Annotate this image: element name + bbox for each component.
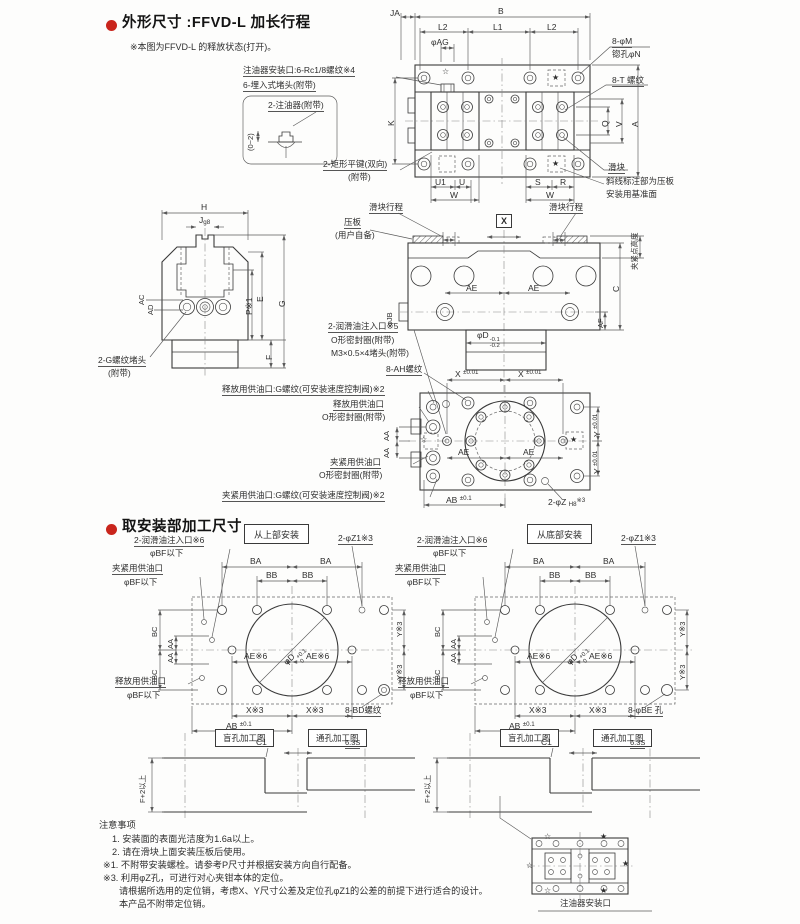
dim-value: X: [518, 369, 524, 379]
dim-aa2: AA: [383, 448, 392, 458]
note-item: 2. 请在滑块上面安装压板后使用。: [112, 847, 251, 858]
dim-l1: L1: [493, 23, 502, 33]
drawing-front-view: [146, 210, 286, 376]
section1-title: 外形尺寸 :FFVD-L 加长行程: [122, 15, 311, 32]
label-clamp-point-height: 夹紧点高度: [631, 233, 640, 271]
dim-w-right: W: [546, 191, 554, 201]
callout-bf-max: φBF以下: [124, 578, 157, 588]
callout-flat-key-attached: (附带): [348, 173, 371, 183]
callout-clamp-port: 夹紧用供油口: [395, 564, 446, 575]
dim-ae-right: AE: [528, 284, 539, 294]
callout-8-phi-be-holes: 8-φBE 孔: [628, 706, 663, 717]
notes-title: 注意事项: [99, 820, 136, 831]
dim-u: U: [459, 178, 465, 188]
callout-release-port: 释放用供油口: [333, 400, 384, 411]
filled-star-marker: ★: [622, 859, 629, 868]
dim-value: AB: [446, 495, 457, 505]
note-item: ※1. 不附带安装螺栓。请参考P尺寸并根据安装方向自行配备。: [103, 860, 357, 871]
callout-clamp-port: 夹紧用供油口: [112, 564, 163, 575]
callout-8-ah-thread: 8-AH螺纹: [386, 365, 422, 376]
dim-x1: X※3: [246, 706, 264, 716]
callout-clamp-port: 夹紧用供油口: [330, 458, 381, 469]
dim-ae1: AE※6: [527, 652, 550, 662]
dim-g: G: [278, 300, 288, 307]
open-star-marker: ☆: [544, 886, 551, 895]
dim-c: C: [612, 286, 622, 292]
dim-x2: X※3: [589, 706, 607, 716]
dim-bb1: BB: [549, 571, 560, 581]
dim-ae-bottom-right: AE: [523, 448, 534, 458]
dim-note: ※3: [577, 497, 586, 504]
callout-8-phi-m: 8-φM: [612, 37, 632, 48]
callout-oring: O形密封圈(附带): [322, 413, 385, 423]
dim-ac: AC: [138, 295, 147, 305]
callout-datum-line1: 斜线标注部为压板: [606, 177, 674, 187]
filled-star-marker: ★: [600, 886, 607, 895]
callout-8-t-thread: 8-T 螺纹: [612, 76, 644, 87]
dim-tol: ±0.1: [523, 721, 535, 728]
dim-d-with-tolerance: φD-0.1-0.2: [477, 331, 500, 349]
dim-tol: ±0.1: [240, 721, 252, 728]
dim-ae-bottom-left: AE: [458, 448, 469, 458]
dim-aa1: AA: [383, 431, 392, 441]
dim-ag: φAG: [431, 38, 449, 48]
section1-note: ※本图为FFVD-L 的释放状态(打开)。: [130, 42, 276, 52]
dim-x-boxed: X: [496, 214, 512, 228]
drawing-hole-sections-right: [433, 733, 700, 818]
dim-ae-left: AE: [466, 284, 477, 294]
dim-y1: Y※3: [679, 622, 688, 637]
dim-value: Y: [592, 431, 602, 437]
callout-bf-max: φBF以下: [150, 549, 183, 559]
callout-release-port-g-thread: 释放用供油口:G螺纹(可安装速度控制阀)※2: [222, 385, 385, 396]
callout-lube-inlet: 2-润滑油注入口※6: [134, 536, 204, 547]
callout-bf-max: φBF以下: [407, 578, 440, 588]
dim-y1-tol: Y ±0.01: [592, 414, 603, 437]
dim-e: E: [256, 296, 266, 302]
section-bullet-icon: [106, 524, 117, 535]
surface-finish: 6.3S: [630, 739, 645, 749]
dim-a: A: [631, 121, 641, 127]
dim-ba2: BA: [603, 557, 614, 567]
dim-j-g8: Jg8: [199, 216, 210, 226]
callout-g-thread-plug-attached: (附带): [108, 369, 131, 379]
dim-value: 2-φZ: [548, 497, 566, 507]
section-bullet-icon: [106, 20, 117, 31]
filled-star-marker: ★: [552, 159, 559, 168]
note-item: 1. 安装面的表面光洁度为1.6a以上。: [112, 834, 260, 845]
dim-bc1: BC: [151, 627, 160, 637]
technical-drawing-linework: [0, 0, 800, 924]
callout-pressure-plate-user: (用户自备): [335, 231, 375, 241]
dim-bb2: BB: [585, 571, 596, 581]
dim-tol: ±0.01: [463, 369, 478, 376]
dim-value: Y: [592, 468, 602, 474]
callout-2-lubricators: 2-注油器(附带): [268, 101, 324, 112]
dim-x2-tol: X ±0.01: [518, 369, 542, 380]
dim-y2: Y※3: [679, 665, 688, 680]
callout-2-phi-z1: 2-φZ1※3: [621, 534, 656, 545]
dim-l2-left: L2: [438, 23, 447, 33]
callout-bf-max: φBF以下: [433, 549, 466, 559]
dim-p: P※1: [245, 297, 255, 315]
dim-ba1: BA: [533, 557, 544, 567]
open-star-marker: ☆: [544, 832, 551, 841]
note-item: ※3. 利用φZ孔，可进行对心夹钳本体的定位。: [103, 873, 289, 884]
dim-c1: C1: [541, 738, 552, 748]
dim-q: Q: [601, 120, 611, 127]
callout-2-phi-z1: 2-φZ1※3: [338, 534, 373, 545]
callout-release-port: 释放用供油口: [398, 677, 449, 688]
dim-tol: ±0.01: [592, 414, 599, 429]
open-star-marker: ☆: [420, 435, 427, 444]
dim-value: φD: [477, 330, 489, 340]
dim-value: X: [455, 369, 461, 379]
lubricator-view-caption: 注油器安装口: [560, 899, 611, 909]
dim-l2-right: L2: [547, 23, 556, 33]
dim-tol: ±0.1: [460, 495, 472, 502]
callout-slider-stroke-left: 滑块行程: [369, 203, 403, 214]
dim-ae1: AE※6: [244, 652, 267, 662]
callout-clamp-port-g-thread: 夹紧用供油口:G螺纹(可安装速度控制阀)※2: [222, 491, 385, 502]
callout-bf-max: φBF以下: [127, 691, 160, 701]
callout-oring: O形密封圈(附带): [331, 336, 394, 346]
dim-aa2: AA: [167, 653, 176, 663]
dim-ba2: BA: [320, 557, 331, 567]
dim-x1-tol: X ±0.01: [455, 369, 479, 380]
dim-tol: ±0.01: [526, 369, 541, 376]
dim-bc1: BC: [434, 627, 443, 637]
callout-counterbore-n: 锪孔φN: [612, 50, 641, 60]
dim-w-left: W: [450, 191, 458, 201]
note-item: 请根据所选用的定位销，考虑X、Y尺寸公差及定位孔φZ1的公差的前提下进行适合的设…: [119, 886, 488, 897]
dim-v: V: [615, 121, 625, 127]
callout-g-thread-plug: 2-G螺纹堵头: [98, 356, 146, 367]
boxed-label-install-from-bottom: 从底部安装: [527, 524, 592, 544]
filled-star-marker: ★: [552, 73, 559, 82]
dim-b: B: [498, 7, 504, 17]
dim-r: R: [560, 178, 566, 188]
filled-star-marker: ★: [570, 435, 577, 444]
dim-y2-tol: Y ±0.01: [592, 451, 603, 474]
note-item: 本产品不附带定位销。: [119, 899, 211, 910]
dim-aa1: AA: [450, 639, 459, 649]
callout-2-phi-z: 2-φZ H8※3: [548, 497, 585, 508]
callout-embedded-plug: 6-埋入式堵头(附带): [243, 81, 316, 92]
dim-ae2: AE※6: [306, 652, 329, 662]
dim-ab-tol: AB ±0.1: [446, 495, 472, 506]
callout-slider: 滑块: [608, 163, 625, 174]
dim-fit: H8: [569, 501, 577, 508]
callout-lubricator-port: 注油器安装口:6-Rc1/8螺纹※4: [243, 66, 355, 77]
callout-flat-key: 2-矩形平键(双向): [323, 160, 387, 171]
section2-title: 取安装部加工尺寸: [122, 519, 242, 536]
callout-pressure-plate: 压板: [344, 218, 361, 229]
dim-fit: g8: [203, 219, 210, 226]
callout-lube-inlet: 2-润滑油注入口※5: [328, 322, 398, 333]
dim-f-plus-2: F+2以上: [424, 775, 433, 803]
callout-lube-inlet: 2-润滑油注入口※6: [417, 536, 487, 547]
dim-k: K: [387, 120, 397, 126]
dim-f-plus-2: F+2以上: [139, 775, 148, 803]
dim-u1: U1: [435, 178, 446, 188]
dim-ba1: BA: [250, 557, 261, 567]
surface-finish: 6.3S: [345, 739, 360, 749]
dim-ae2: AE※6: [589, 652, 612, 662]
dim-x1: X※3: [529, 706, 547, 716]
dim-aa2: AA: [450, 653, 459, 663]
dim-ja: JA: [390, 9, 400, 19]
callout-bf-max: φBF以下: [410, 691, 443, 701]
dim-c1: C1: [256, 738, 267, 748]
callout-m3-plug: M3×0.5×4堵头(附带): [331, 349, 409, 359]
dim-bb2: BB: [302, 571, 313, 581]
dim-tol: ±0.01: [592, 451, 599, 466]
open-star-marker: ☆: [526, 861, 533, 870]
dim-y1: Y※3: [396, 622, 405, 637]
dim-s: S: [535, 178, 541, 188]
dim-h: H: [201, 203, 207, 213]
dim-f: F: [265, 355, 275, 360]
callout-datum-line2: 安装用基准面: [606, 190, 657, 200]
callout-slider-stroke-right: 滑块行程: [549, 203, 583, 214]
callout-release-port: 释放用供油口: [115, 677, 166, 688]
open-star-marker: ☆: [442, 67, 449, 76]
callout-8-bd-thread: 8-BD螺纹: [345, 706, 381, 717]
tol-lower: -0.2: [490, 343, 500, 349]
dim-bb1: BB: [266, 571, 277, 581]
dim-af: AF: [597, 318, 606, 328]
dim-x2: X※3: [306, 706, 324, 716]
callout-oring: O形密封圈(附带): [319, 471, 382, 481]
boxed-label-install-from-top: 从上部安装: [244, 524, 309, 544]
dim-ad: AD: [147, 305, 156, 315]
drawing-hole-sections-left: [148, 733, 415, 818]
filled-star-marker: ★: [600, 832, 607, 841]
dim-0-2: (0~2): [247, 133, 256, 151]
dim-aa1: AA: [167, 639, 176, 649]
drawing-lubricator-ports-view: [500, 796, 652, 911]
catalog-page: 外形尺寸 :FFVD-L 加长行程 ※本图为FFVD-L 的释放状态(打开)。 …: [0, 0, 800, 924]
